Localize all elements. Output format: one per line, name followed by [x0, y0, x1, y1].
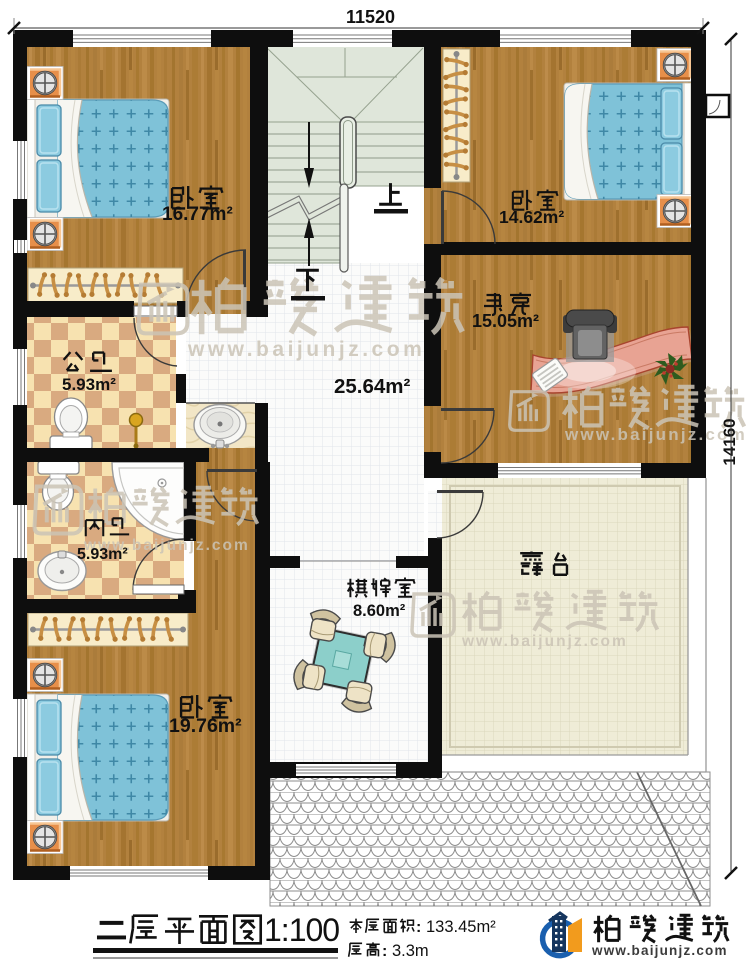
- svg-text:www.baijunjz.com: www.baijunjz.com: [461, 633, 628, 650]
- svg-text:14160: 14160: [720, 418, 739, 465]
- svg-text:1:100: 1:100: [264, 912, 339, 948]
- svg-text:25.64m²: 25.64m²: [334, 375, 411, 398]
- svg-text:11520: 11520: [346, 7, 395, 27]
- svg-text:19.76m²: 19.76m²: [169, 715, 242, 737]
- svg-text:8.60m²: 8.60m²: [353, 602, 406, 620]
- svg-text:3.3m: 3.3m: [392, 942, 429, 960]
- svg-text:5.93m²: 5.93m²: [62, 375, 116, 394]
- svg-text:www.baijunjz.com: www.baijunjz.com: [591, 943, 728, 958]
- svg-text::: :: [416, 919, 421, 936]
- svg-text:16.77m²: 16.77m²: [162, 204, 233, 225]
- svg-text:14.62m²: 14.62m²: [499, 207, 564, 227]
- svg-text:5.93m²: 5.93m²: [77, 546, 128, 563]
- svg-text:www.baijunjz.com: www.baijunjz.com: [187, 338, 425, 361]
- svg-text:15.05m²: 15.05m²: [472, 311, 539, 331]
- svg-text:133.45m²: 133.45m²: [426, 918, 496, 936]
- svg-text::: :: [382, 943, 387, 960]
